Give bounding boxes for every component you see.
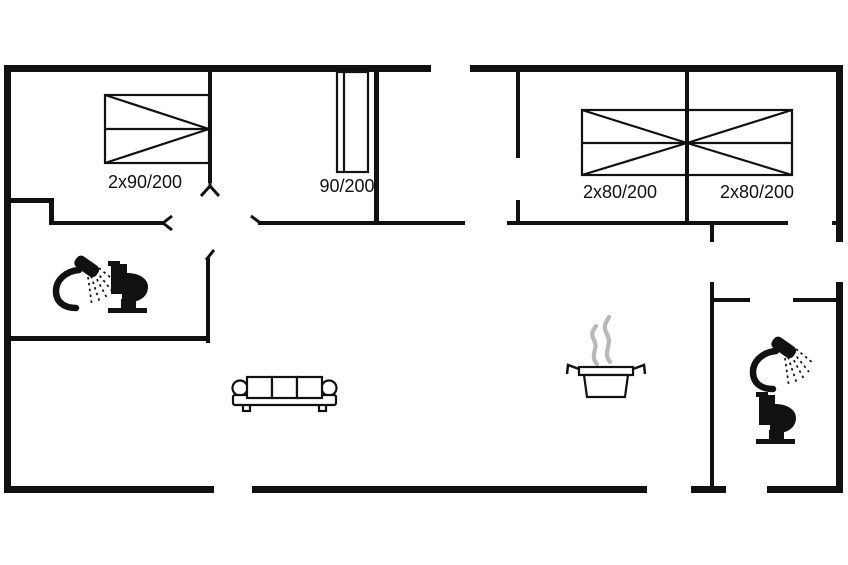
wall-kitchen-hall (710, 282, 714, 493)
bed-label-2x90-200: 2x90/200 (108, 172, 182, 192)
bed-label-2x80-200-right: 2x80/200 (720, 182, 794, 202)
wall-hallway (258, 221, 465, 225)
wall-bathroom-right-top-left (710, 298, 750, 302)
wall-left (4, 65, 11, 493)
bed-label-90-200: 90/200 (319, 176, 374, 196)
sofa-icon (233, 377, 337, 411)
wall-corridor-right-upper (516, 72, 520, 158)
bathroom-right-fixtures (753, 335, 813, 444)
wall-bottom-1 (4, 486, 214, 493)
floor-plan-canvas: 2x90/200 90/200 2x80/200 2x80/200 (0, 0, 848, 565)
shower-icon (56, 254, 116, 308)
wall-bedrooms-bottom-stub (832, 221, 843, 225)
bed-label-2x80-200-left: 2x80/200 (583, 182, 657, 202)
shower-icon (753, 335, 813, 389)
bed-double-2x90: 2x90/200 (105, 95, 209, 192)
floor-plan: 2x90/200 90/200 2x80/200 2x80/200 (0, 0, 848, 565)
wall-right-lower (836, 282, 843, 493)
door-mark-hall-left (163, 216, 172, 230)
toilet-icon (756, 392, 796, 444)
wall-bathroom-left-top (49, 221, 163, 225)
wall-right-upper (836, 65, 843, 242)
toilet-icon (108, 261, 148, 313)
door-mark-bedroom1 (201, 183, 219, 196)
wall-step-horizontal (11, 198, 53, 203)
bathroom-left-fixtures (56, 254, 148, 313)
wall-top-right (470, 65, 843, 72)
wall-bottom-2 (252, 486, 647, 493)
door-mark-hall-right (251, 216, 259, 222)
wall-bathroom-left-right (206, 258, 210, 343)
bed-single-90: 90/200 (319, 72, 374, 196)
wall-step-vertical (49, 198, 54, 225)
wall-bathroom-right-top-right (793, 298, 843, 302)
wall-bottom-4 (767, 486, 843, 493)
wall-small-bedroom-right (374, 72, 379, 225)
wall-between-bedrooms (685, 72, 689, 225)
steam-lines (592, 317, 610, 364)
wall-bedrooms-bottom (507, 221, 788, 225)
wall-bottom-3 (691, 486, 726, 493)
cooking-pot-icon (567, 317, 645, 397)
wall-bathroom-left-bottom (11, 336, 210, 341)
wall-kitchen-hall-tick (710, 221, 714, 242)
